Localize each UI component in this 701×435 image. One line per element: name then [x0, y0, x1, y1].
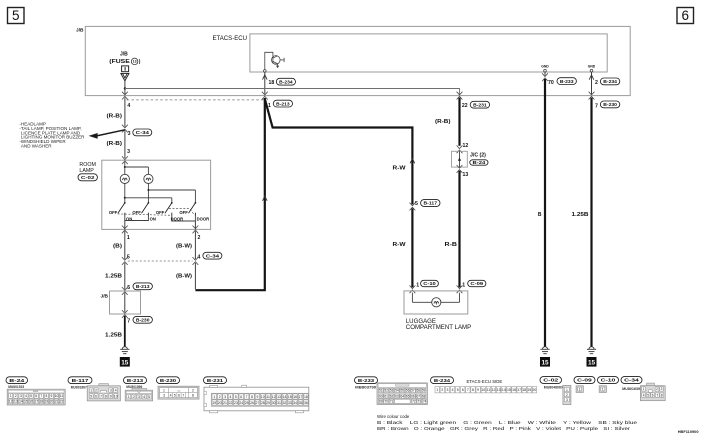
- svg-text:(B-W): (B-W): [176, 273, 192, 279]
- svg-text:1: 1: [128, 395, 130, 399]
- svg-text:B : Black LG : Light green: B : Black LG : Light green G : Green L :…: [377, 420, 637, 426]
- svg-text:66: 66: [411, 394, 415, 398]
- svg-text:B-233: B-233: [358, 378, 375, 383]
- svg-text:2: 2: [192, 389, 194, 393]
- svg-text:1: 1: [602, 388, 604, 392]
- svg-text:4: 4: [198, 255, 201, 261]
- svg-text:7: 7: [467, 388, 469, 392]
- svg-text:29: 29: [266, 401, 270, 405]
- svg-text:3: 3: [224, 395, 226, 399]
- svg-text:36: 36: [304, 401, 308, 405]
- svg-text:DOOR: DOOR: [197, 216, 210, 221]
- svg-text:65: 65: [406, 394, 410, 398]
- svg-text:16: 16: [29, 400, 33, 404]
- svg-text:9: 9: [51, 394, 53, 398]
- svg-text:13: 13: [497, 388, 501, 392]
- svg-text:56: 56: [406, 389, 410, 393]
- svg-text:2: 2: [595, 80, 598, 86]
- svg-text:10: 10: [481, 388, 485, 392]
- svg-text:B-24: B-24: [473, 160, 487, 165]
- svg-text:20: 20: [533, 388, 537, 392]
- svg-text:71: 71: [390, 400, 394, 404]
- svg-text:4: 4: [25, 394, 27, 398]
- svg-text:67: 67: [417, 394, 421, 398]
- svg-text:25: 25: [245, 401, 249, 405]
- svg-text:3: 3: [138, 395, 140, 399]
- svg-text:22: 22: [229, 401, 233, 405]
- svg-text:14: 14: [19, 400, 23, 404]
- svg-text:8: 8: [105, 394, 107, 398]
- svg-text:3: 3: [566, 398, 568, 402]
- svg-text:B-230: B-230: [160, 378, 177, 383]
- svg-text:1: 1: [579, 388, 581, 392]
- svg-text:5: 5: [12, 8, 20, 23]
- svg-text:5: 5: [127, 255, 130, 261]
- svg-text:1: 1: [436, 388, 438, 392]
- svg-text:19: 19: [212, 401, 216, 405]
- svg-text:8: 8: [472, 388, 474, 392]
- svg-text:18: 18: [269, 80, 275, 86]
- svg-text:GND: GND: [541, 65, 549, 69]
- svg-text:53: 53: [390, 389, 394, 393]
- svg-text:4: 4: [452, 388, 454, 392]
- svg-text:1: 1: [268, 103, 271, 109]
- svg-text:8: 8: [661, 393, 663, 397]
- svg-text:5: 5: [647, 393, 649, 397]
- svg-text:62: 62: [390, 394, 394, 398]
- svg-text:14: 14: [502, 388, 506, 392]
- svg-text:60: 60: [379, 394, 383, 398]
- svg-text:6: 6: [35, 394, 37, 398]
- svg-text:15: 15: [24, 400, 28, 404]
- svg-text:5: 5: [90, 394, 92, 398]
- svg-text:11: 11: [266, 395, 270, 399]
- svg-text:6: 6: [681, 8, 689, 23]
- svg-text:B-231: B-231: [207, 378, 224, 383]
- svg-text:17: 17: [517, 388, 521, 392]
- svg-text:1: 1: [416, 282, 419, 288]
- svg-text:HBF110900: HBF110900: [678, 429, 699, 434]
- svg-text:(R-B): (R-B): [107, 141, 123, 147]
- svg-text:6: 6: [462, 388, 464, 392]
- svg-text:ON: ON: [150, 216, 156, 221]
- svg-text:10: 10: [261, 395, 265, 399]
- svg-text:33: 33: [288, 401, 292, 405]
- svg-text:8: 8: [251, 395, 253, 399]
- svg-text:C-09: C-09: [470, 281, 483, 286]
- svg-text:7: 7: [127, 319, 130, 325]
- svg-text:31: 31: [277, 401, 281, 405]
- svg-text:16: 16: [293, 395, 297, 399]
- svg-text:3: 3: [446, 388, 448, 392]
- svg-text:J/B: J/B: [101, 294, 109, 300]
- svg-text:(B): (B): [113, 244, 122, 250]
- svg-text:B-117: B-117: [424, 201, 438, 206]
- svg-text:5: 5: [148, 395, 150, 399]
- svg-text:J/B: J/B: [120, 52, 128, 58]
- svg-text:15: 15: [541, 360, 549, 367]
- svg-text:4: 4: [170, 393, 172, 397]
- svg-text:(B-W): (B-W): [176, 244, 192, 250]
- svg-text:10: 10: [55, 394, 59, 398]
- svg-text:1: 1: [643, 387, 645, 391]
- svg-text:11: 11: [487, 388, 491, 392]
- svg-text:3: 3: [661, 387, 663, 391]
- svg-text:1: 1: [163, 389, 165, 393]
- svg-text:18: 18: [304, 395, 308, 399]
- svg-text:54: 54: [395, 389, 399, 393]
- svg-text:9: 9: [256, 395, 258, 399]
- svg-text:B: B: [538, 212, 542, 218]
- svg-text:MU801515: MU801515: [8, 385, 24, 389]
- svg-text:9: 9: [110, 394, 112, 398]
- svg-text:22: 22: [60, 400, 64, 404]
- svg-text:1.25B: 1.25B: [105, 332, 122, 338]
- svg-text:B-233: B-233: [560, 79, 574, 84]
- svg-text:17: 17: [299, 395, 303, 399]
- svg-text:63: 63: [395, 394, 399, 398]
- svg-text:5: 5: [174, 393, 176, 397]
- svg-text:23: 23: [234, 401, 238, 405]
- svg-text:70: 70: [548, 80, 554, 86]
- svg-text:12: 12: [492, 388, 496, 392]
- svg-text:1: 1: [90, 388, 92, 392]
- svg-text:55: 55: [400, 389, 404, 393]
- svg-text:13: 13: [14, 400, 18, 404]
- svg-text:C-34: C-34: [624, 378, 639, 383]
- svg-text:2: 2: [656, 387, 658, 391]
- svg-text:72: 72: [412, 400, 416, 404]
- svg-text:18: 18: [39, 400, 43, 404]
- svg-text:26: 26: [250, 401, 254, 405]
- svg-text:7: 7: [656, 393, 658, 397]
- svg-text:OFF: OFF: [179, 210, 188, 215]
- svg-text:1: 1: [127, 235, 130, 241]
- svg-text:3: 3: [128, 131, 131, 137]
- svg-text:34: 34: [293, 401, 297, 405]
- svg-text:3: 3: [163, 393, 165, 397]
- svg-text:9: 9: [477, 388, 479, 392]
- svg-text:J/C (2): J/C (2): [470, 152, 486, 158]
- svg-text:B-234: B-234: [434, 378, 451, 383]
- svg-text:20: 20: [218, 401, 222, 405]
- svg-text:8: 8: [192, 393, 194, 397]
- svg-text:BR : Brown O : Orange GR :: BR : Brown O : Orange GR : Grey R : Red …: [377, 426, 631, 432]
- svg-text:C-02: C-02: [81, 175, 95, 180]
- svg-text:(FUSE: (FUSE: [109, 59, 130, 65]
- svg-text:OFF: OFF: [156, 210, 165, 215]
- svg-text:B-213: B-213: [276, 101, 290, 106]
- svg-text:MU804806X: MU804806X: [544, 385, 564, 389]
- svg-text:15: 15: [507, 388, 511, 392]
- svg-text:7: 7: [40, 394, 42, 398]
- svg-text:B-213: B-213: [127, 378, 144, 383]
- svg-text:2: 2: [133, 395, 135, 399]
- svg-text:7: 7: [100, 394, 102, 398]
- svg-text:R-W: R-W: [393, 242, 406, 248]
- svg-text:COMPARTMENT LAMP: COMPARTMENT LAMP: [406, 324, 471, 331]
- svg-text:6: 6: [652, 393, 654, 397]
- svg-text:1: 1: [10, 394, 12, 398]
- svg-text:B-24: B-24: [9, 378, 25, 383]
- svg-text:2: 2: [15, 394, 17, 398]
- svg-text:11: 11: [60, 394, 64, 398]
- svg-text:1: 1: [462, 282, 465, 288]
- svg-text:52: 52: [384, 389, 388, 393]
- svg-text:19: 19: [45, 400, 49, 404]
- svg-text:13: 13: [463, 172, 469, 178]
- svg-text:3: 3: [110, 388, 112, 392]
- svg-text:7: 7: [182, 393, 184, 397]
- svg-text:69: 69: [379, 400, 383, 404]
- svg-text:B-234: B-234: [603, 79, 617, 84]
- svg-text:22: 22: [462, 103, 468, 109]
- svg-text:21: 21: [55, 400, 59, 404]
- svg-text:J/B: J/B: [76, 27, 84, 33]
- svg-text:MU801639: MU801639: [622, 387, 640, 391]
- svg-text:70: 70: [384, 400, 388, 404]
- svg-text:(R-B): (R-B): [107, 114, 123, 120]
- svg-text:15: 15: [121, 360, 129, 367]
- svg-text:LAMP: LAMP: [79, 168, 94, 174]
- svg-text:18: 18: [522, 388, 526, 392]
- svg-text:B-213: B-213: [136, 284, 150, 289]
- svg-text:C-34: C-34: [136, 130, 150, 135]
- svg-text:7: 7: [246, 395, 248, 399]
- svg-text:59: 59: [422, 389, 426, 393]
- svg-text:ROOM: ROOM: [79, 162, 95, 168]
- svg-text:74: 74: [423, 400, 427, 404]
- svg-text:8: 8: [45, 394, 47, 398]
- svg-text:MB803790: MB803790: [355, 385, 376, 389]
- svg-text:1.25B: 1.25B: [105, 273, 122, 279]
- svg-text:20: 20: [50, 400, 54, 404]
- svg-text:1: 1: [213, 395, 215, 399]
- svg-text:B-230: B-230: [603, 102, 617, 107]
- svg-text:C-10: C-10: [601, 378, 616, 383]
- svg-text:5: 5: [457, 388, 459, 392]
- svg-text:5: 5: [415, 201, 418, 207]
- svg-text:64: 64: [400, 394, 404, 398]
- svg-text:6: 6: [240, 395, 242, 399]
- svg-text:13: 13: [277, 395, 281, 399]
- svg-text:ETACS-ECU: ETACS-ECU: [213, 36, 248, 42]
- svg-text:B-117: B-117: [72, 378, 89, 383]
- svg-text:5: 5: [127, 285, 130, 291]
- svg-text:OFF: OFF: [109, 210, 118, 215]
- svg-text:5: 5: [30, 394, 32, 398]
- svg-text:4: 4: [143, 395, 145, 399]
- svg-text:12: 12: [463, 143, 469, 149]
- svg-text:68: 68: [422, 394, 426, 398]
- svg-text:B-230: B-230: [136, 318, 150, 323]
- svg-text:73: 73: [417, 400, 421, 404]
- svg-text:3: 3: [20, 394, 22, 398]
- svg-text:B-234: B-234: [279, 79, 293, 84]
- svg-text:32: 32: [282, 401, 286, 405]
- svg-text:28: 28: [261, 401, 265, 405]
- svg-text:AND WASHER: AND WASHER: [21, 143, 52, 148]
- svg-text:ETACS-ECU SIDE: ETACS-ECU SIDE: [467, 379, 503, 384]
- svg-text:C-10: C-10: [423, 281, 436, 286]
- svg-text:R-W: R-W: [393, 165, 406, 171]
- svg-text:6: 6: [178, 393, 180, 397]
- svg-text:2: 2: [219, 395, 221, 399]
- svg-text:1.25B: 1.25B: [572, 212, 589, 218]
- svg-text:4: 4: [127, 103, 130, 109]
- svg-text:19: 19: [527, 388, 531, 392]
- svg-text:B-231: B-231: [473, 102, 487, 107]
- svg-text:27: 27: [256, 401, 260, 405]
- svg-text:1: 1: [566, 388, 568, 392]
- svg-text:C-34: C-34: [206, 253, 220, 258]
- svg-text:5: 5: [235, 395, 237, 399]
- svg-text:4: 4: [643, 393, 645, 397]
- svg-text:2: 2: [566, 393, 568, 397]
- svg-text:17: 17: [34, 400, 38, 404]
- svg-text:3: 3: [127, 149, 130, 155]
- svg-text:58: 58: [417, 389, 421, 393]
- svg-text:2: 2: [198, 235, 201, 241]
- svg-text:15: 15: [288, 395, 292, 399]
- svg-text:2: 2: [95, 388, 97, 392]
- svg-text:4: 4: [230, 395, 232, 399]
- svg-text:57: 57: [411, 389, 415, 393]
- svg-text:Wire colour code: Wire colour code: [377, 414, 410, 419]
- svg-text:13: 13: [133, 60, 137, 64]
- svg-text:30: 30: [272, 401, 276, 405]
- svg-text:12: 12: [272, 395, 276, 399]
- svg-text:MU801867: MU801867: [71, 385, 87, 389]
- svg-text:51: 51: [379, 389, 383, 393]
- svg-text:GND: GND: [588, 65, 596, 69]
- svg-text:35: 35: [299, 401, 303, 405]
- svg-text:C-02: C-02: [543, 378, 559, 383]
- svg-text:24: 24: [239, 401, 243, 405]
- svg-text:21: 21: [223, 401, 227, 405]
- svg-text:(R-B): (R-B): [435, 119, 451, 125]
- svg-text:7: 7: [595, 103, 598, 109]
- svg-text:12: 12: [9, 400, 13, 404]
- svg-text:4: 4: [115, 388, 117, 392]
- svg-text:R-B: R-B: [445, 242, 458, 248]
- svg-text:14: 14: [282, 395, 286, 399]
- svg-text:C-09: C-09: [577, 378, 592, 383]
- svg-text:6: 6: [95, 394, 97, 398]
- svg-text:10: 10: [114, 394, 118, 398]
- svg-text:16: 16: [512, 388, 516, 392]
- svg-text:61: 61: [384, 394, 388, 398]
- svg-text:15: 15: [588, 360, 596, 367]
- svg-text:2: 2: [441, 388, 443, 392]
